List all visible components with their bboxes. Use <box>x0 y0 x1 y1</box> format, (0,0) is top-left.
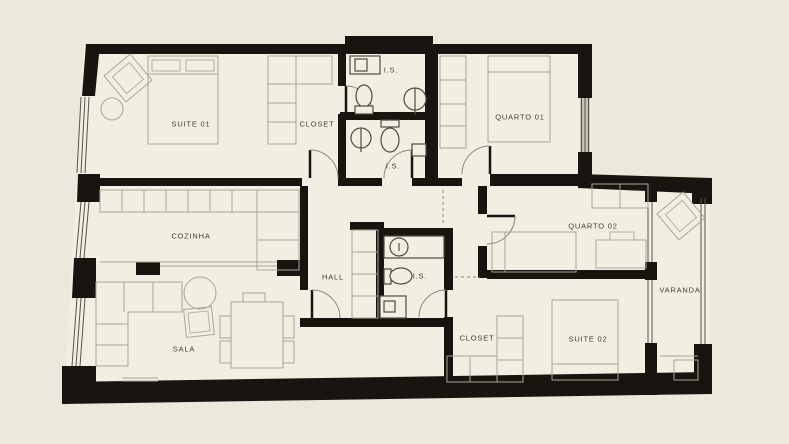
room-label-suite02: SUITE 02 <box>569 335 608 344</box>
is1-toilet-icon <box>355 85 373 114</box>
room-label-quarto02: QUARTO 02 <box>568 222 617 231</box>
room-label-is1: I.S. <box>384 66 398 75</box>
room-label-varanda: VARANDA <box>659 286 700 295</box>
room-label-quarto01: QUARTO 01 <box>495 113 544 122</box>
room-label-closet01: CLOSET <box>300 120 335 129</box>
room-label-is3: I.S. <box>413 272 427 281</box>
floor-plan: SUITE 01 CLOSET I.S. I.S. QUARTO 01 COZI… <box>0 0 789 444</box>
is3-toilet-icon <box>384 268 412 284</box>
room-label-closet02: CLOSET <box>460 334 495 343</box>
is3-counter-sink <box>384 236 444 258</box>
room-label-cozinha: COZINHA <box>171 232 210 241</box>
is3-shower <box>380 296 406 318</box>
room-label-suite01: SUITE 01 <box>172 120 211 129</box>
is1-shower <box>350 56 380 74</box>
is2-fixture <box>412 144 426 156</box>
is2-toilet-icon <box>381 120 399 152</box>
room-label-sala: SALA <box>173 345 195 354</box>
room-label-hall: HALL <box>322 273 344 282</box>
room-label-is2: I.S. <box>386 162 400 171</box>
